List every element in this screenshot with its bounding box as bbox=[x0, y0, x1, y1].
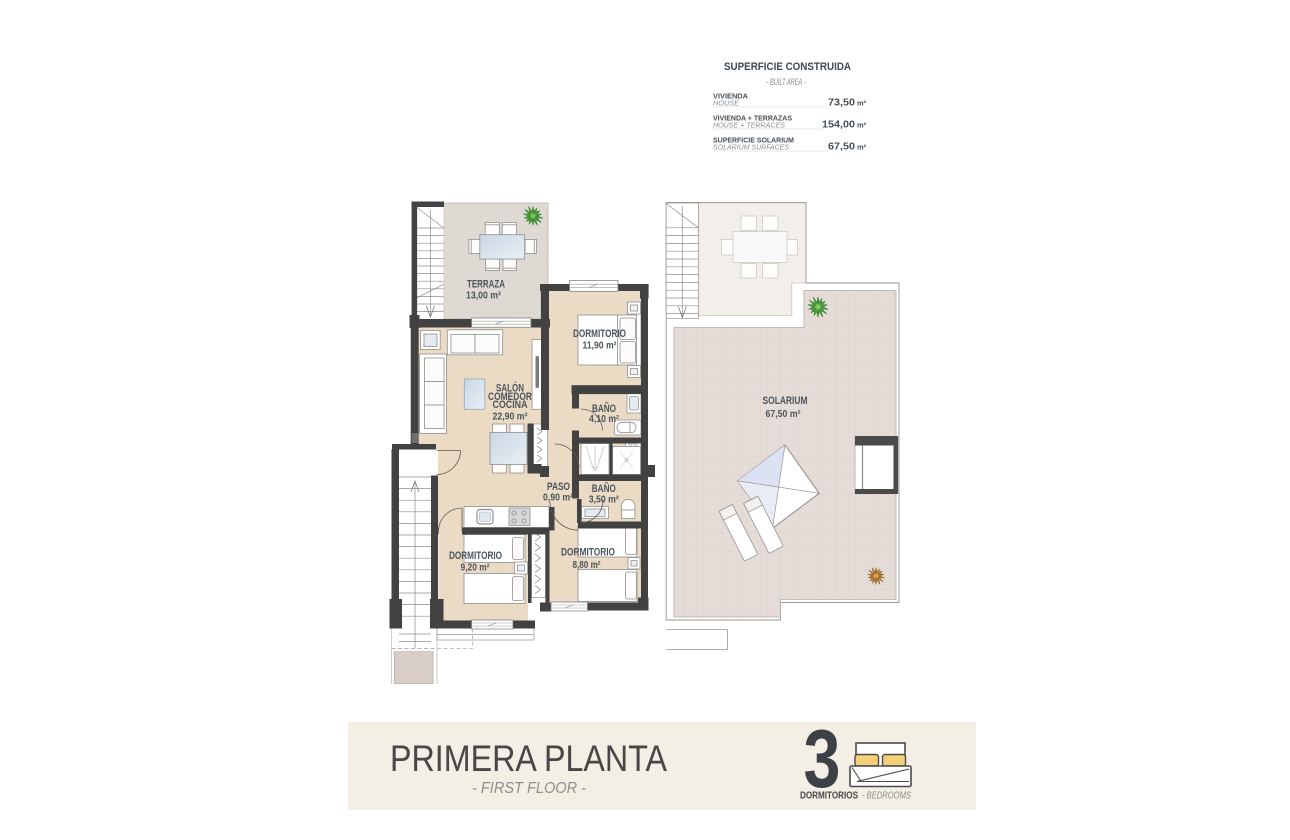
svg-text:67,50 m²: 67,50 m² bbox=[766, 408, 801, 420]
svg-text:11,90 m²: 11,90 m² bbox=[583, 340, 617, 352]
svg-text:- BEDROOMS: - BEDROOMS bbox=[862, 791, 911, 802]
svg-text:HOUSE: HOUSE bbox=[713, 99, 740, 108]
svg-text:m²: m² bbox=[857, 143, 867, 152]
svg-text:PRIMERA PLANTA: PRIMERA PLANTA bbox=[390, 738, 667, 779]
svg-text:9,20 m²: 9,20 m² bbox=[461, 562, 490, 574]
svg-text:m²: m² bbox=[857, 121, 867, 130]
svg-text:13,00 m²: 13,00 m² bbox=[466, 290, 501, 302]
svg-text:SOLARIUM: SOLARIUM bbox=[763, 395, 808, 407]
svg-text:COCINA: COCINA bbox=[493, 399, 528, 411]
svg-text:DORMITORIO: DORMITORIO bbox=[573, 328, 626, 340]
svg-text:DORMITORIO: DORMITORIO bbox=[449, 550, 502, 562]
svg-text:HOUSE + TERRACES: HOUSE + TERRACES bbox=[713, 121, 785, 130]
svg-text:SUPERFICIE CONSTRUIDA: SUPERFICIE CONSTRUIDA bbox=[724, 61, 851, 73]
svg-text:4,10 m²: 4,10 m² bbox=[589, 413, 619, 425]
svg-text:73,50: 73,50 bbox=[828, 97, 855, 109]
svg-text:8,80 m²: 8,80 m² bbox=[573, 559, 601, 571]
svg-text:m²: m² bbox=[857, 99, 867, 108]
svg-text:22,90 m²: 22,90 m² bbox=[493, 411, 528, 423]
svg-text:0,90 m²: 0,90 m² bbox=[543, 492, 573, 504]
svg-text:67,50: 67,50 bbox=[828, 141, 855, 153]
svg-text:- FIRST FLOOR -: - FIRST FLOOR - bbox=[472, 780, 586, 797]
svg-text:3,50 m²: 3,50 m² bbox=[589, 494, 619, 506]
svg-text:- BUILT AREA -: - BUILT AREA - bbox=[767, 77, 806, 87]
svg-text:DORMITORIOS: DORMITORIOS bbox=[800, 791, 858, 802]
svg-text:SOLARIUM SURFACES: SOLARIUM SURFACES bbox=[713, 143, 789, 152]
svg-text:DORMITORIO: DORMITORIO bbox=[561, 547, 615, 559]
svg-text:154,00: 154,00 bbox=[822, 119, 855, 131]
